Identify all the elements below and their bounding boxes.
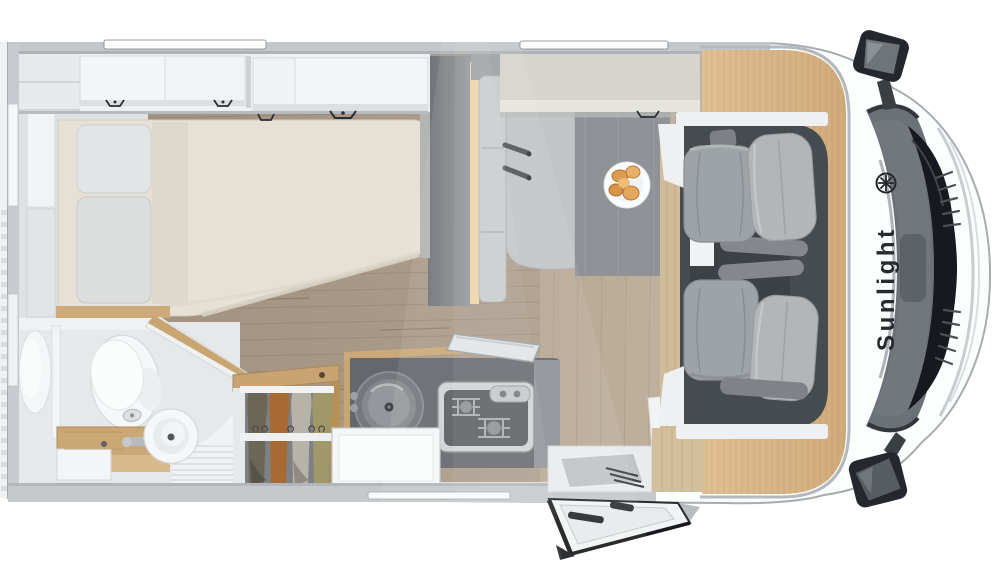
svg-text:Sunlight: Sunlight — [873, 226, 900, 351]
